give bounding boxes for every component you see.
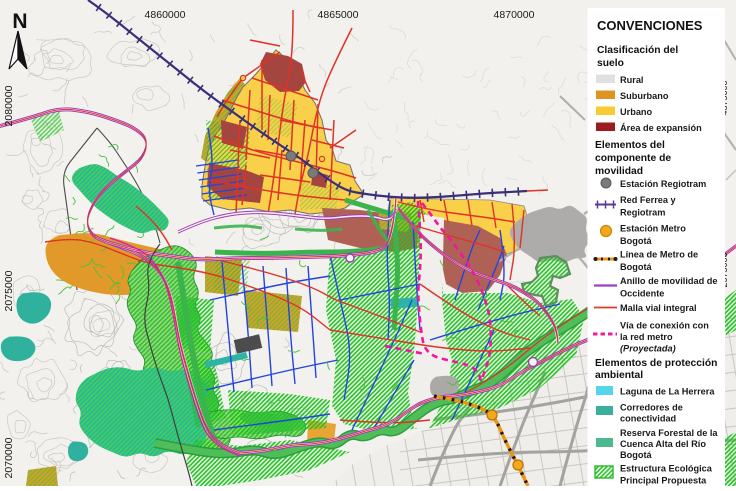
svg-text:Estructura Ecológica: Estructura Ecológica [620,464,713,474]
svg-text:ambiental: ambiental [595,370,643,381]
svg-text:(Proyectada): (Proyectada) [620,344,676,354]
svg-text:Cuenca Alta del Río: Cuenca Alta del Río [620,439,706,449]
svg-text:N: N [12,10,27,33]
svg-text:suelo: suelo [597,58,624,69]
svg-text:Anillo de movilidad de: Anillo de movilidad de [620,276,718,286]
svg-text:2080000: 2080000 [3,85,15,126]
svg-text:Urbano: Urbano [620,107,653,117]
svg-text:Elementos de protección: Elementos de protección [595,358,717,369]
svg-text:Área de expansión: Área de expansión [620,122,702,133]
svg-text:Rural: Rural [620,75,644,85]
svg-text:Clasificación del: Clasificación del [597,45,678,56]
svg-text:2070000: 2070000 [3,437,15,478]
svg-text:4870000: 4870000 [494,9,535,21]
svg-text:Corredores de: Corredores de [620,403,683,413]
svg-text:4865000: 4865000 [318,9,359,21]
svg-text:Estación Regiotram: Estación Regiotram [620,179,706,189]
svg-text:componente de: componente de [595,153,671,164]
svg-text:Bogotá: Bogotá [620,262,653,272]
svg-text:Línea de Metro de: Línea de Metro de [620,250,698,260]
svg-text:Vía de conexión con: Vía de conexión con [620,321,709,331]
svg-text:4860000: 4860000 [145,9,186,21]
svg-text:2075000: 2075000 [3,270,15,311]
svg-text:Laguna de La Herrera: Laguna de La Herrera [620,387,715,397]
svg-text:Elementos del: Elementos del [595,140,665,151]
svg-text:Red Ferrea y: Red Ferrea y [620,195,677,205]
svg-text:Principal Propuesta: Principal Propuesta [620,476,707,486]
svg-text:Occidente: Occidente [620,289,664,299]
svg-text:Estación Metro: Estación Metro [620,224,686,234]
svg-text:Bogotá: Bogotá [620,450,653,460]
svg-text:conectividad: conectividad [620,414,676,424]
svg-text:Bogotá: Bogotá [620,236,653,246]
svg-text:Regiotram: Regiotram [620,208,665,218]
svg-text:CONVENCIONES: CONVENCIONES [597,18,703,33]
svg-text:Reserva Forestal de la: Reserva Forestal de la [620,428,718,438]
svg-text:la red metro: la red metro [620,332,673,342]
svg-text:Suburbano: Suburbano [620,91,669,101]
svg-text:movilidad: movilidad [595,166,643,177]
svg-text:Malla vial integral: Malla vial integral [620,303,697,313]
